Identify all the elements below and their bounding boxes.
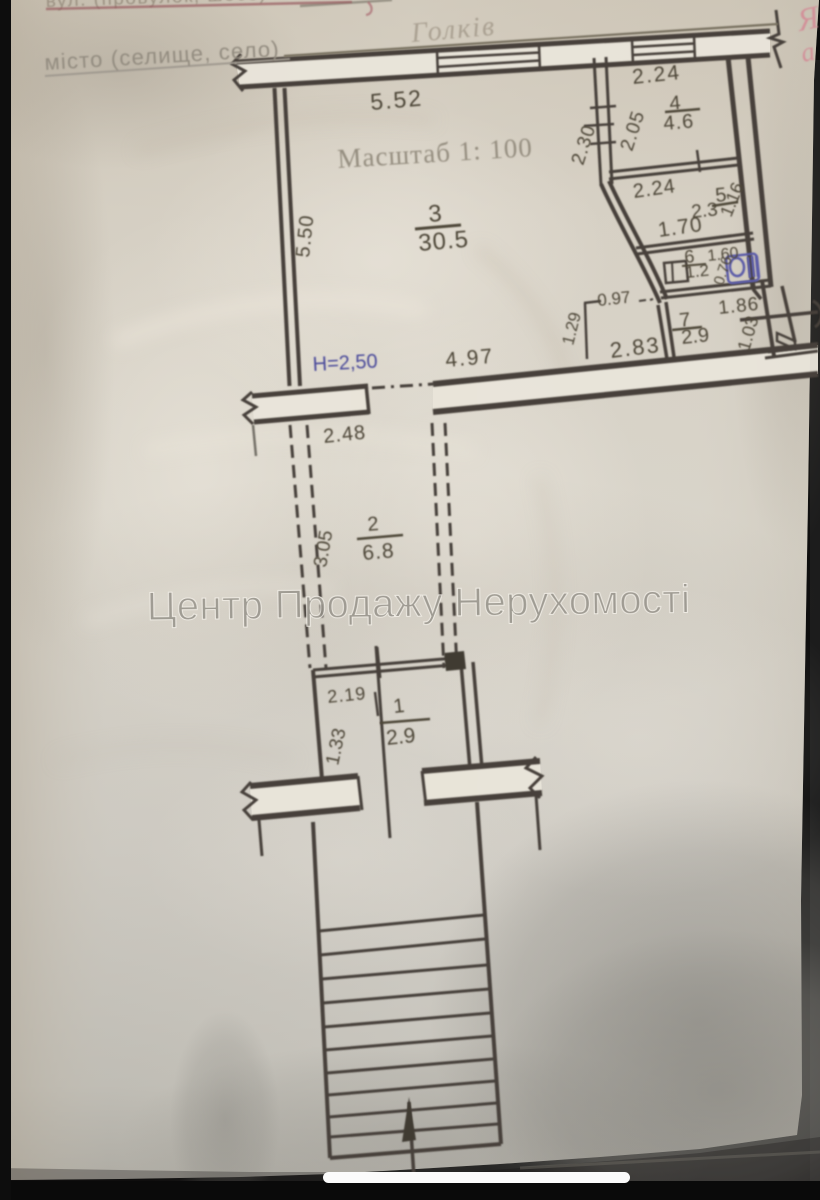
svg-text:2.19: 2.19	[326, 683, 367, 707]
svg-text:3: 3	[427, 200, 443, 228]
svg-text:4.97: 4.97	[444, 345, 495, 372]
svg-text:1: 1	[392, 695, 405, 718]
svg-text:2.48: 2.48	[322, 422, 367, 448]
svg-text:30.5: 30.5	[417, 226, 470, 257]
svg-text:Центр Продажу Нерухомості: Центр Продажу Нерухомості	[147, 577, 691, 629]
svg-text:5.52: 5.52	[369, 84, 424, 114]
svg-text:6.8: 6.8	[361, 539, 395, 565]
svg-text:1.86: 1.86	[717, 294, 760, 319]
svg-text:2: 2	[367, 513, 380, 536]
svg-text:4.6: 4.6	[663, 110, 696, 135]
svg-text:0.97: 0.97	[596, 288, 631, 310]
svg-text:5.50: 5.50	[292, 214, 318, 259]
svg-text:Н=2,50: Н=2,50	[312, 351, 378, 376]
svg-text:2.9: 2.9	[385, 724, 416, 750]
